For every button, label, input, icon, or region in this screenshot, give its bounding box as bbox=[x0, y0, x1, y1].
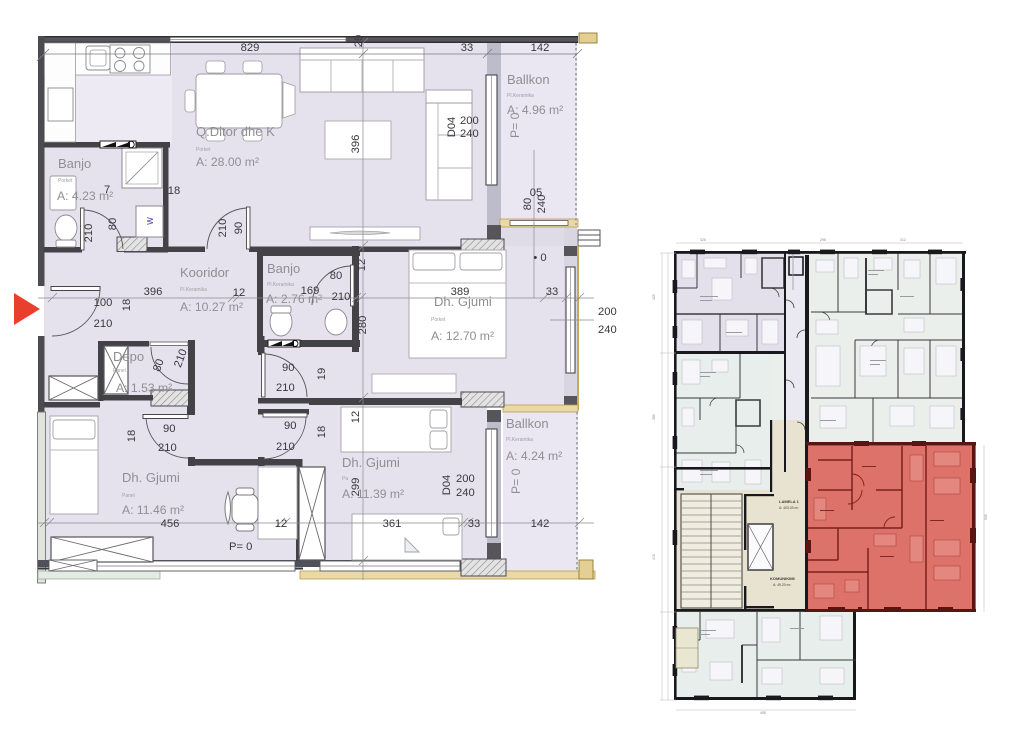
svg-text:90: 90 bbox=[284, 420, 296, 432]
svg-text:7: 7 bbox=[104, 184, 110, 196]
svg-text:12: 12 bbox=[356, 259, 368, 271]
svg-text:KOMUNIKIMI: KOMUNIKIMI bbox=[770, 576, 795, 581]
svg-text:Pa: Pa bbox=[342, 476, 348, 482]
svg-text:Dh. Gjumi: Dh. Gjumi bbox=[122, 470, 180, 485]
svg-text:240: 240 bbox=[598, 324, 617, 336]
svg-text:361: 361 bbox=[383, 518, 402, 530]
svg-text:18: 18 bbox=[126, 430, 138, 442]
svg-text:Banjo: Banjo bbox=[58, 156, 91, 171]
svg-text:18: 18 bbox=[168, 185, 180, 197]
svg-text:P= 0: P= 0 bbox=[509, 468, 523, 494]
svg-text:29: 29 bbox=[353, 35, 365, 47]
svg-text:325: 325 bbox=[700, 238, 706, 242]
svg-text:• 0: • 0 bbox=[533, 252, 546, 264]
svg-text:Kooridor: Kooridor bbox=[180, 265, 230, 280]
svg-text:A: 2.76 m²: A: 2.76 m² bbox=[266, 292, 322, 306]
svg-text:Dh. Gjumi: Dh. Gjumi bbox=[342, 455, 400, 470]
svg-text:Porket: Porket bbox=[196, 147, 211, 153]
svg-text:Pl.Keramika: Pl.Keramika bbox=[507, 93, 534, 99]
svg-text:100: 100 bbox=[94, 297, 113, 309]
svg-text:Porket: Porket bbox=[431, 317, 446, 323]
svg-text:425: 425 bbox=[652, 294, 656, 300]
svg-text:A: 28.00 m²: A: 28.00 m² bbox=[196, 155, 259, 169]
svg-text:240: 240 bbox=[456, 487, 475, 499]
svg-text:455: 455 bbox=[760, 711, 766, 715]
svg-text:Pl.Keramika: Pl.Keramika bbox=[267, 282, 294, 288]
svg-text:200: 200 bbox=[456, 473, 475, 485]
svg-text:240: 240 bbox=[460, 128, 479, 140]
svg-text:Ballkon: Ballkon bbox=[507, 72, 550, 87]
svg-text:18: 18 bbox=[121, 299, 133, 311]
svg-text:505: 505 bbox=[984, 514, 988, 520]
svg-text:A: 403.03 m²: A: 403.03 m² bbox=[779, 506, 799, 510]
svg-text:90: 90 bbox=[282, 362, 294, 374]
svg-text:Pl.Keramika: Pl.Keramika bbox=[180, 287, 207, 293]
svg-text:210: 210 bbox=[276, 441, 295, 453]
svg-text:396: 396 bbox=[350, 135, 362, 154]
svg-text:D04: D04 bbox=[441, 475, 453, 496]
svg-text:Pl.Keramika: Pl.Keramika bbox=[506, 437, 533, 443]
svg-text:A: 4.24 m²: A: 4.24 m² bbox=[506, 449, 562, 463]
svg-text:Panel: Panel bbox=[122, 493, 135, 499]
svg-text:33: 33 bbox=[461, 42, 473, 54]
svg-text:Ballkon: Ballkon bbox=[506, 416, 549, 431]
svg-text:P= 0: P= 0 bbox=[508, 112, 522, 138]
svg-text:A: 10.27 m²: A: 10.27 m² bbox=[180, 300, 243, 314]
svg-text:298: 298 bbox=[820, 238, 826, 242]
svg-text:A: 12.70 m²: A: 12.70 m² bbox=[431, 329, 494, 343]
svg-text:90: 90 bbox=[233, 222, 245, 234]
svg-text:80: 80 bbox=[522, 198, 534, 210]
svg-text:210: 210 bbox=[217, 219, 229, 238]
svg-text:456: 456 bbox=[161, 518, 180, 530]
svg-text:80: 80 bbox=[107, 218, 119, 230]
svg-text:Panel: Panel bbox=[113, 368, 126, 374]
svg-text:396: 396 bbox=[144, 286, 163, 298]
svg-text:210: 210 bbox=[94, 318, 113, 330]
svg-text:829: 829 bbox=[241, 42, 260, 54]
svg-text:W: W bbox=[146, 217, 155, 225]
svg-text:A: 11.46 m²: A: 11.46 m² bbox=[122, 503, 184, 517]
svg-text:312: 312 bbox=[900, 238, 906, 242]
svg-text:Dh. Gjumi: Dh. Gjumi bbox=[434, 294, 492, 309]
svg-text:D04: D04 bbox=[446, 117, 458, 138]
svg-text:380: 380 bbox=[652, 414, 656, 420]
svg-text:Depo: Depo bbox=[113, 349, 144, 364]
svg-text:200: 200 bbox=[598, 306, 617, 318]
svg-text:Porket: Porket bbox=[58, 178, 73, 184]
svg-text:210: 210 bbox=[332, 291, 351, 303]
svg-text:Q.Ditor dhe K: Q.Ditor dhe K bbox=[196, 124, 275, 139]
svg-text:A: 49.20 m²: A: 49.20 m² bbox=[773, 583, 791, 587]
svg-text:Banjo: Banjo bbox=[267, 261, 300, 276]
svg-text:LAMELA 1: LAMELA 1 bbox=[779, 499, 800, 504]
svg-text:142: 142 bbox=[531, 42, 550, 54]
svg-text:12: 12 bbox=[275, 518, 287, 530]
svg-text:19: 19 bbox=[316, 368, 328, 380]
svg-text:12: 12 bbox=[350, 411, 362, 423]
svg-text:33: 33 bbox=[468, 518, 480, 530]
svg-text:142: 142 bbox=[531, 518, 550, 530]
svg-text:A: 1.53 m²: A: 1.53 m² bbox=[116, 381, 172, 395]
svg-text:280: 280 bbox=[357, 316, 369, 335]
svg-text:90: 90 bbox=[163, 423, 175, 435]
svg-text:240: 240 bbox=[536, 195, 548, 214]
svg-text:200: 200 bbox=[460, 115, 479, 127]
svg-text:210: 210 bbox=[83, 224, 95, 243]
svg-text:33: 33 bbox=[546, 286, 558, 298]
svg-text:210: 210 bbox=[276, 382, 295, 394]
svg-text:80: 80 bbox=[330, 270, 342, 282]
svg-text:18: 18 bbox=[316, 426, 328, 438]
svg-text:A: 11.39 m²: A: 11.39 m² bbox=[342, 487, 404, 501]
svg-text:210: 210 bbox=[158, 442, 177, 454]
svg-text:P= 0: P= 0 bbox=[229, 541, 252, 553]
svg-text:410: 410 bbox=[652, 554, 656, 560]
svg-text:12: 12 bbox=[233, 287, 245, 299]
